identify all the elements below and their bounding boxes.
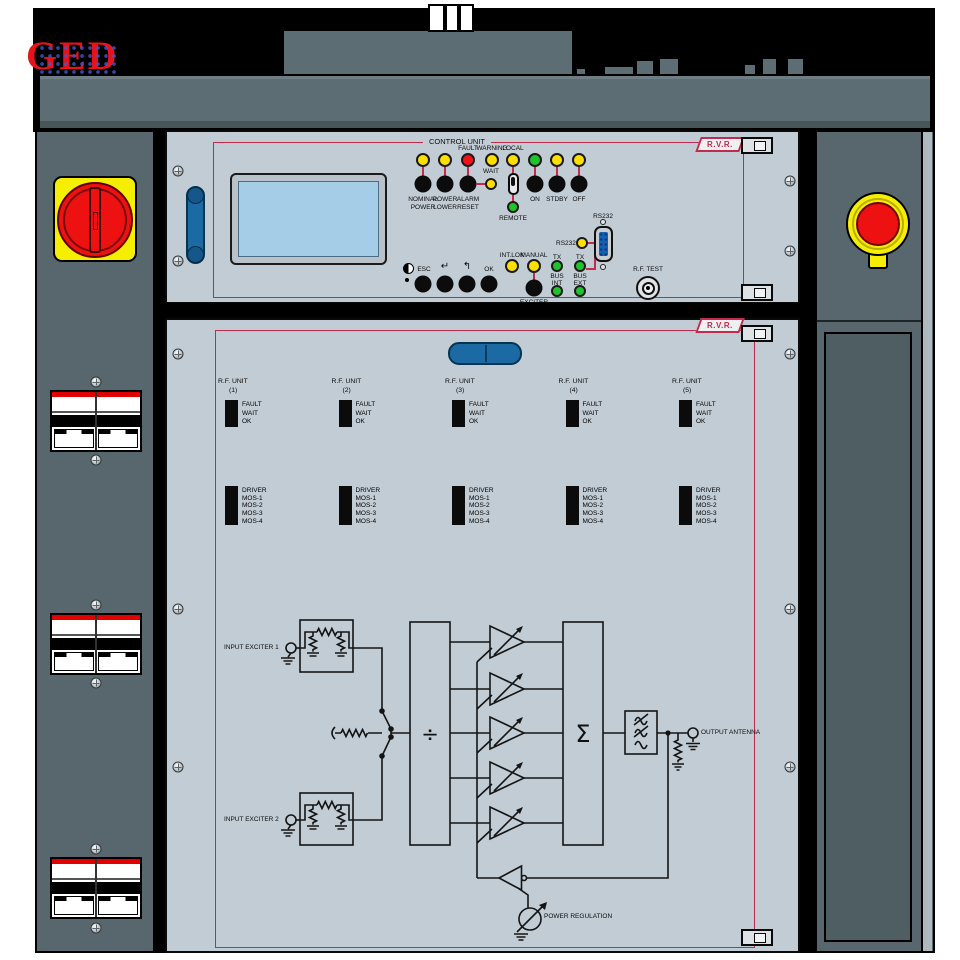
screw-icon	[173, 166, 184, 177]
on-led	[528, 153, 542, 167]
on-label: ON	[530, 196, 540, 204]
label-line: RESET	[457, 204, 479, 212]
emergency-stop-button[interactable]	[856, 202, 900, 246]
screw-icon	[91, 923, 102, 934]
tx-int-led	[551, 260, 563, 272]
alarm-reset-label: ALARMRESET	[457, 196, 479, 211]
breaker-divider	[95, 392, 97, 450]
enter-button[interactable]	[437, 276, 454, 293]
rf-test-label: R.F. TEST	[633, 266, 663, 274]
nominal-power-button[interactable]	[415, 176, 432, 193]
power-lower-button[interactable]	[437, 176, 454, 193]
rvr-logo-text: R.V.R.	[707, 140, 733, 149]
transmitter-front-panel: GED	[0, 0, 960, 960]
tx-ext-led	[574, 260, 586, 272]
screw-icon	[785, 176, 796, 187]
screw-icon	[91, 844, 102, 855]
contrast-dot-icon	[405, 278, 409, 282]
divider-symbol: ÷	[421, 722, 439, 746]
bnc-pin	[646, 286, 650, 290]
screw-icon	[173, 256, 184, 267]
bus-int-led	[551, 285, 563, 297]
off-label: OFF	[573, 196, 586, 204]
wait-led	[485, 178, 497, 190]
off-button[interactable]	[571, 176, 588, 193]
right-column-seam	[817, 320, 921, 322]
breaker-divider	[95, 615, 97, 673]
input-exciter-2-label: INPUT EXCITER 2	[224, 816, 279, 824]
contrast-icon	[403, 263, 414, 274]
nominal-power-led	[416, 153, 430, 167]
db9-screw-icon	[600, 264, 606, 270]
screw-icon	[785, 604, 796, 615]
enter-icon: ↵	[441, 263, 449, 271]
stdby-label: STDBY	[546, 196, 568, 204]
ged-logo-dots-icon	[38, 44, 120, 74]
breaker-toggle[interactable]	[54, 652, 94, 671]
wait-label: WAIT	[483, 168, 499, 176]
rs232-led	[576, 237, 588, 249]
rvr-logo: R.V.R.	[695, 318, 744, 333]
screw-icon	[91, 455, 102, 466]
breaker-toggle[interactable]	[98, 896, 138, 915]
power-regulation-label: POWER REGULATION	[544, 913, 612, 921]
warning-led	[485, 153, 499, 167]
manual-led	[527, 259, 541, 273]
breaker-toggle[interactable]	[98, 429, 138, 448]
ok-label: OK	[484, 266, 493, 274]
rs232-led-label: RS232	[556, 240, 576, 248]
label-line: ALARM	[457, 196, 479, 204]
db9-screw-icon	[600, 219, 606, 225]
lcd-bezel	[230, 173, 387, 265]
remote-led	[507, 201, 519, 213]
rvr-logo-text: R.V.R.	[707, 321, 733, 330]
back-button[interactable]	[459, 276, 476, 293]
circuit-breaker-1	[50, 390, 142, 452]
breaker-divider	[95, 859, 97, 917]
stdby-button[interactable]	[549, 176, 566, 193]
panel-divider	[165, 303, 800, 318]
fault-led	[461, 153, 475, 167]
breaker-toggle[interactable]	[54, 429, 94, 448]
output-antenna-label: OUTPUT ANTENNA	[701, 729, 760, 737]
rotary-handle-notch	[93, 212, 98, 230]
stdby-led	[550, 153, 564, 167]
panel-handle-vertical[interactable]	[186, 186, 205, 264]
exciter-changeover-button[interactable]	[526, 280, 543, 297]
label-line: POWER	[433, 196, 458, 204]
rf-block-diagram: ÷ Σ	[215, 608, 763, 955]
ok-button[interactable]	[481, 276, 498, 293]
top-terminal-connector	[428, 4, 474, 32]
rs232-link-line	[586, 268, 596, 270]
bus-ext-led	[574, 285, 586, 297]
led-link-line	[476, 183, 485, 185]
local-led	[506, 153, 520, 167]
local-label: LOCAL	[502, 145, 523, 153]
screw-icon	[173, 762, 184, 773]
circuit-breaker-2	[50, 613, 142, 675]
screw-icon	[91, 600, 102, 611]
input-exciter-1-label: INPUT EXCITER 1	[224, 644, 279, 652]
handle-end	[187, 187, 204, 204]
hinge-icon	[741, 284, 773, 301]
screw-icon	[173, 349, 184, 360]
connector-divider	[443, 6, 447, 30]
alarm-reset-button[interactable]	[460, 176, 477, 193]
esc-button[interactable]	[415, 276, 432, 293]
screw-icon	[785, 349, 796, 360]
fault-label: FAULT	[458, 145, 478, 153]
label-line: LOWER	[433, 204, 458, 212]
lcd-screen	[238, 181, 379, 257]
cabinet-top-box	[282, 29, 574, 76]
rf-test-bnc[interactable]	[636, 276, 660, 300]
hinge-icon	[741, 325, 773, 342]
circuit-breaker-3	[50, 857, 142, 919]
right-inset-panel	[824, 332, 912, 942]
screw-icon	[91, 377, 102, 388]
hinge-icon	[741, 137, 773, 154]
power-lower-led	[438, 153, 452, 167]
power-lower-label: POWERLOWER	[433, 196, 458, 211]
screw-icon	[785, 246, 796, 257]
breaker-toggle[interactable]	[54, 896, 94, 915]
db9-pins	[599, 232, 608, 256]
breaker-toggle[interactable]	[98, 652, 138, 671]
connector-divider	[457, 6, 461, 30]
ged-logo: GED	[26, 34, 126, 80]
back-arrow-icon: ↰	[463, 263, 471, 271]
cabinet-top-cap	[38, 74, 932, 130]
local-remote-switch[interactable]	[508, 173, 519, 195]
cabinet-edge-strip	[921, 132, 932, 951]
on-button[interactable]	[527, 176, 544, 193]
remote-label: REMOTE	[499, 215, 527, 223]
screw-icon	[173, 604, 184, 615]
rs232-db9-port[interactable]	[594, 226, 613, 262]
intlok-led	[505, 259, 519, 273]
screw-icon	[785, 762, 796, 773]
panel-handle-horizontal[interactable]	[448, 342, 522, 365]
rvr-logo: R.V.R.	[695, 137, 744, 152]
handle-end	[187, 246, 204, 263]
screw-icon	[91, 678, 102, 689]
off-led	[572, 153, 586, 167]
handle-seam	[485, 345, 487, 362]
esc-label: ESC	[417, 266, 430, 274]
combiner-symbol: Σ	[575, 720, 590, 748]
